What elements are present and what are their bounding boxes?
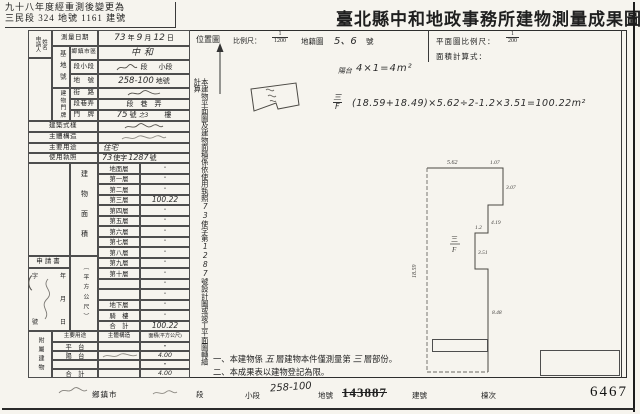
use-label: 主要用途 xyxy=(28,143,98,153)
floor3-calc-prefix-hw: 三 F xyxy=(333,94,342,111)
floor-row: 第七層 • xyxy=(98,237,190,248)
application-header: 申請書 xyxy=(28,256,70,268)
annex-row: • xyxy=(52,360,190,369)
floor-area-value: • xyxy=(140,184,190,195)
floor-label: 第八層 xyxy=(98,247,140,258)
application-body: 字 年 月 號 日 xyxy=(28,268,70,331)
survey-year-hw: 73 xyxy=(114,34,125,43)
dim-top: 5.62 xyxy=(447,160,458,166)
floor-area-value: • xyxy=(140,289,190,300)
floor-area-value: • xyxy=(140,268,190,279)
balcony-calc-prefix-hw: 陽台 xyxy=(338,66,352,76)
floor-label: 第六層 xyxy=(98,226,140,237)
door-label: 門 牌 xyxy=(70,110,98,121)
receipt-handwriting-scribble xyxy=(37,277,59,321)
balcony-calc-hw: 4×1=4m² xyxy=(356,63,413,74)
annex-use: 陽 台 xyxy=(52,351,98,360)
note-line1: 一、本建物係 五 層建物本件僅測量第 三 層部份。 xyxy=(213,352,397,365)
township-value: 中和 xyxy=(98,46,190,60)
annex-structure xyxy=(98,369,140,378)
floor-area-value: 100.22 xyxy=(140,321,190,332)
floor-area-value: • xyxy=(140,300,190,311)
structure-handwriting-scribble xyxy=(121,134,167,142)
street-label: 街 路 xyxy=(70,88,98,99)
plan-scale-fraction: 1 200 xyxy=(506,31,519,44)
floor-area-value: • xyxy=(140,237,190,248)
receipt-year-label: 年 xyxy=(60,274,66,280)
survey-date-label: 測量日期 xyxy=(52,30,98,46)
street-value xyxy=(98,88,190,99)
annex-area: • xyxy=(140,342,190,351)
floor-label: 地下層 xyxy=(98,300,140,311)
survey-date-value: 73 年 9 月 12 日 xyxy=(98,30,190,46)
scan-edge-right xyxy=(633,2,635,412)
footer-township-scribble xyxy=(58,385,88,397)
site-side-label: 基地號 xyxy=(52,46,70,88)
annex-structure xyxy=(98,342,140,351)
annex-area: 4.00 xyxy=(140,351,190,360)
footer-subsection-label: 小段 xyxy=(245,390,260,401)
annex-table: 平 台 • 陽 台 4.00 • 合 計 4.00 xyxy=(52,342,190,378)
structure-value xyxy=(98,132,190,143)
note-line2: 二、本成果表以建物登記為限。 xyxy=(213,366,329,378)
area-left-empty-cell xyxy=(28,163,70,256)
inner-right-border xyxy=(621,30,622,378)
doorplate-side-label: 建物門牌 xyxy=(52,88,70,121)
day-unit: 日 xyxy=(167,35,174,42)
floor-label: 騎 樓 xyxy=(98,310,140,321)
floor-label: 第十層 xyxy=(98,268,140,279)
license-value: 73 使字 1287 號 xyxy=(98,153,190,163)
north-arrow-icon xyxy=(212,42,228,98)
dim-notch-side: 3.51 xyxy=(477,250,488,256)
applicant-name-cell xyxy=(28,58,52,121)
floor-row: 地下層 • xyxy=(98,300,190,311)
license-year-hw: 73 xyxy=(102,154,112,162)
lane-value: 段 巷 弄 xyxy=(98,99,190,110)
floor-row: 第六層 • xyxy=(98,226,190,237)
footer-section-label: 段 xyxy=(196,389,204,400)
floor-area-value: • xyxy=(140,163,190,174)
footer-unit-label: 棟次 xyxy=(481,390,496,401)
survey-day-hw: 12 xyxy=(153,34,164,43)
survey-month-hw: 9 xyxy=(137,34,143,43)
floor-row: 地面層 • xyxy=(98,163,190,174)
annex-area: 4.00 xyxy=(140,369,190,378)
section-unit: 段 xyxy=(141,64,148,71)
floor-row: • xyxy=(98,279,190,290)
footer-old-building-number: 143887 xyxy=(342,385,387,401)
floor-label: 合 計 xyxy=(98,321,140,332)
floor-area-table: 地面層 • 第一層 • 第二層 • 第三層 100.22 第四層 • xyxy=(98,163,190,331)
floor-row: 騎 樓 • xyxy=(98,310,190,321)
floor-row: 第一層 • xyxy=(98,174,190,185)
floor-area-value: • xyxy=(140,226,190,237)
floor-row: 合 計 100.22 xyxy=(98,321,190,332)
remeasure-note-line1: 九十八年度經重測後變更為 xyxy=(5,2,173,13)
section-label: 段小段 xyxy=(70,60,98,74)
footer-section-scribble xyxy=(152,388,178,398)
floor-label: 第九層 xyxy=(98,258,140,269)
annex-use xyxy=(52,360,98,369)
floor-label: 第二層 xyxy=(98,184,140,195)
plan-scale-label: 平面圖比例尺： xyxy=(436,36,496,47)
annex-use: 合 計 xyxy=(52,369,98,378)
stray-paren-mark: （ xyxy=(17,270,33,294)
style-label: 建築式樣 xyxy=(28,121,98,132)
location-scale-fraction: 1 1200 xyxy=(272,31,288,44)
cadastral-sheet-unit: 號 xyxy=(366,36,374,47)
floor-row: 第四層 • xyxy=(98,205,190,216)
vnote-year-hw: 73 xyxy=(201,202,210,220)
license-word: 使字 xyxy=(113,155,127,162)
year-unit: 年 xyxy=(128,35,135,42)
annex-header-use: 主要用途 xyxy=(52,331,98,342)
floor-label: 第五層 xyxy=(98,216,140,227)
annex-header-structure: 主體構造 xyxy=(98,331,140,342)
floor-label: 第七層 xyxy=(98,237,140,248)
license-label: 使用執照 xyxy=(28,153,98,163)
annex-structure-scribble xyxy=(102,352,138,360)
dim-left: 18.59 xyxy=(412,265,418,279)
annex-header-area: 面積(平方公尺) xyxy=(140,331,190,342)
subsection-unit: 小段 xyxy=(159,64,173,71)
floor-label: 地面層 xyxy=(98,163,140,174)
dim-prot-top: 1.07 xyxy=(490,160,500,166)
footer-lot-label: 地號 xyxy=(318,390,333,401)
township-label: 鄉鎮市區 xyxy=(70,46,98,60)
vnote-part2: 使字第 xyxy=(201,220,210,242)
footer-serial-number: 6467 xyxy=(590,384,628,401)
location-scale-label: 比例尺： xyxy=(233,36,261,46)
empty-box-small xyxy=(432,339,488,352)
remeasure-note: 九十八年度經重測後變更為 三民段 324 地號 1161 建號 xyxy=(5,2,176,28)
structure-label: 主體構造 xyxy=(28,132,98,143)
receipt-month-label: 月 xyxy=(60,297,66,303)
receipt-day-label: 日 xyxy=(60,320,66,326)
plan-floor-label-bottom: F xyxy=(451,246,457,254)
stamp-box xyxy=(540,350,620,376)
annex-use: 平 台 xyxy=(52,342,98,351)
door-number-unit: 號 xyxy=(130,112,137,119)
floor-unit: 樓 xyxy=(164,112,171,119)
area-unit-label: （平方公尺） xyxy=(70,256,98,331)
license-suffix: 號 xyxy=(150,155,157,162)
door-value: 75 號 之3 樓 xyxy=(98,110,190,121)
floor-area-value: • xyxy=(140,279,190,290)
license-number-hw: 1287 xyxy=(128,154,148,162)
floor-area-value: • xyxy=(140,310,190,321)
applicant-name-label: 姓名 xyxy=(41,39,47,50)
style-value xyxy=(98,121,190,132)
applicant-label: 申請人 xyxy=(34,36,40,53)
street-handwriting-scribble xyxy=(127,89,161,98)
floor-row: 第五層 • xyxy=(98,216,190,227)
lot-suffix: 地號 xyxy=(156,78,170,85)
header-divider xyxy=(428,30,429,62)
floor-row: 第十層 • xyxy=(98,268,190,279)
lane-label: 段巷弄 xyxy=(70,99,98,110)
cadastral-sheet-hw: 5、6 xyxy=(334,32,357,47)
page-title: 臺北縣中和地政事務所建物測量成果圖 xyxy=(336,5,636,30)
section-handwriting-scribble xyxy=(116,63,138,72)
section-value: 段 小段 xyxy=(98,60,190,74)
style-handwriting-scribble xyxy=(124,122,164,131)
floor-area-value: • xyxy=(140,258,190,269)
floor-row: 第九層 • xyxy=(98,258,190,269)
lot-value: 258-100 地號 xyxy=(98,74,190,88)
floor-area-value: • xyxy=(140,216,190,227)
floor-label xyxy=(98,279,140,290)
floor-label xyxy=(98,289,140,300)
annex-structure xyxy=(98,360,140,369)
applicant-name-header: 申請人 姓名 xyxy=(28,30,52,58)
dim-prot-right: 3.07 xyxy=(505,185,516,191)
footer-lot-number-hw: 258-100 xyxy=(270,381,312,395)
area-formula-label: 面積計算式： xyxy=(436,51,487,62)
floor-label: 第三層 xyxy=(98,195,140,206)
floor-label: 第一層 xyxy=(98,174,140,185)
floor-row: 第三層 100.22 xyxy=(98,195,190,206)
floor-label: 第四層 xyxy=(98,205,140,216)
door-number-hw: 75 xyxy=(117,111,128,120)
cadastral-map-label: 地籍圖 xyxy=(301,36,324,47)
footer-building-label: 建號 xyxy=(412,390,427,401)
floor-area-value: 100.22 xyxy=(140,195,190,206)
remeasure-note-line2: 三民段 324 地號 1161 建號 xyxy=(5,13,173,24)
month-unit: 月 xyxy=(144,35,151,42)
note-floors-hw: 五 xyxy=(265,355,274,365)
floor-area-value: • xyxy=(140,205,190,216)
vnote-part1: 本建物平面圖及建物面積係依使用執照 xyxy=(201,78,210,202)
floor-row: 第八層 • xyxy=(98,247,190,258)
vnote-number-hw: 1287 xyxy=(201,242,210,278)
lot-label: 地 號 xyxy=(70,74,98,88)
footer-township-label: 鄉鎮市 xyxy=(92,389,118,400)
door-sub-hw: 之3 xyxy=(139,113,149,119)
annex-row: 合 計 4.00 xyxy=(52,369,190,378)
dim-notch-top: 1.2 xyxy=(475,225,482,231)
floor-area-value: • xyxy=(140,247,190,258)
cadastral-sketch xyxy=(246,80,304,116)
floor3-calc-hw: (18.59+18.49)×5.62÷2-1.2×3.51=100.22m² xyxy=(352,98,586,109)
floor-row: 第二層 • xyxy=(98,184,190,195)
dim-right-lower: 8.48 xyxy=(492,309,502,316)
vertical-source-note: 本建物平面圖及建物面積係依使用執照73使字第1287號設計圖或竣工平面圖轉繪計算 xyxy=(194,78,209,372)
plan-floor-label-top: 三 xyxy=(451,235,458,243)
lot-number-hw: 258-100 xyxy=(118,77,154,86)
use-value: 住宅 xyxy=(98,143,190,153)
annex-side-label: 附屬建物 xyxy=(28,331,52,378)
scan-edge-bottom xyxy=(2,408,635,410)
floor-row: • xyxy=(98,289,190,300)
scanned-survey-form: 九十八年度經重測後變更為 三民段 324 地號 1161 建號 臺北縣中和地政事… xyxy=(0,0,640,414)
area-side-label: 建物面積 xyxy=(70,163,98,256)
floor-area-value: • xyxy=(140,174,190,185)
annex-row: 平 台 • xyxy=(52,342,190,351)
note-measured-floor-hw: 三 xyxy=(353,355,362,365)
dim-right-upper: 4.19 xyxy=(491,219,501,226)
annex-area: • xyxy=(140,360,190,369)
